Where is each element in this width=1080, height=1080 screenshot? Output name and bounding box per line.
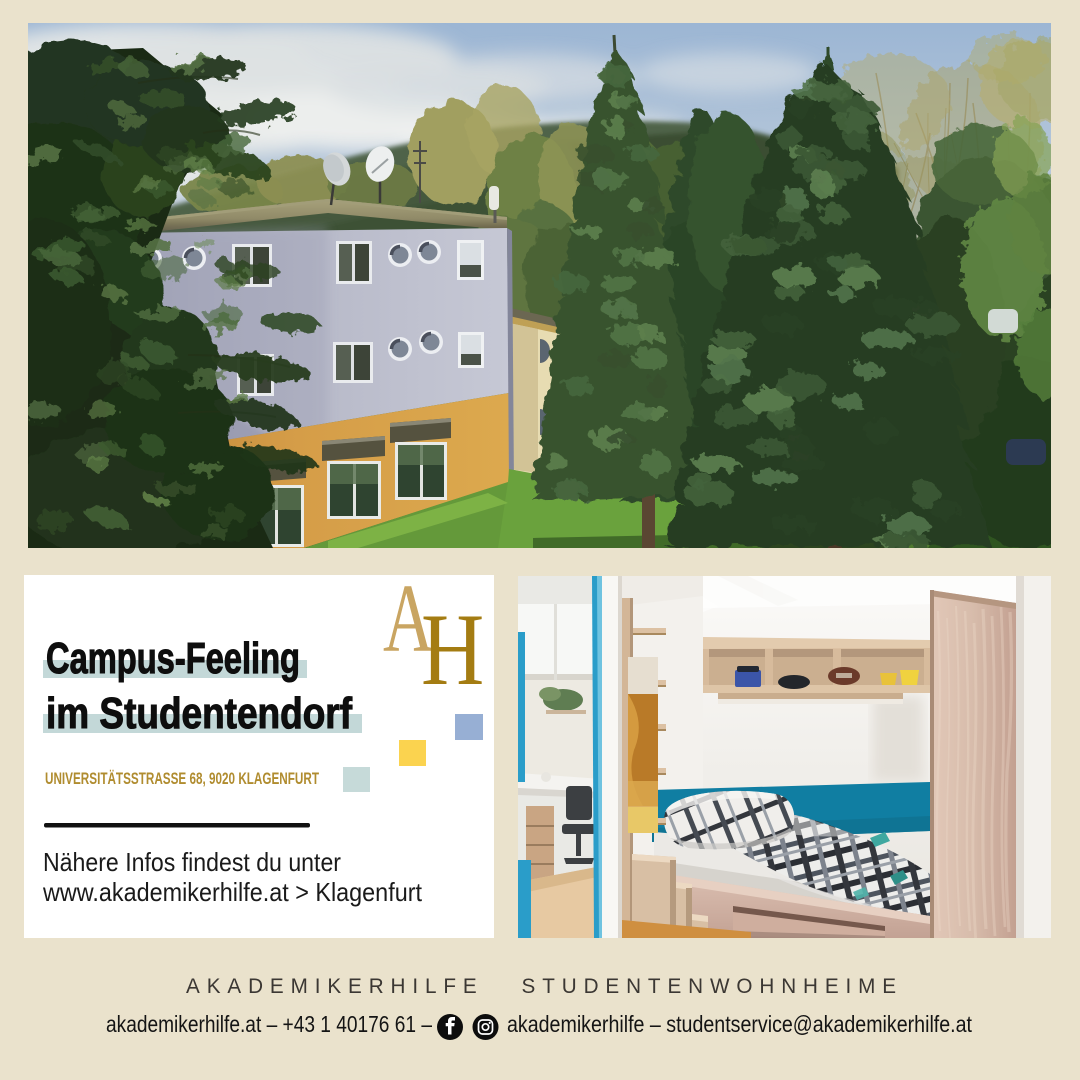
svg-text:AKADEMIKERHILFE STUDENTENWOH: AKADEMIKERHILFE STUDENTENWOHNHEIME bbox=[186, 975, 903, 998]
svg-text:akademikerhilfe.at – +43 1 401: akademikerhilfe.at – +43 1 40176 61 – bbox=[106, 1011, 432, 1037]
svg-text:Campus-Feeling: Campus-Feeling bbox=[46, 634, 300, 683]
svg-text:akademikerhilfe – studentservi: akademikerhilfe – studentservice@akademi… bbox=[507, 1011, 973, 1037]
svg-text:www.akademikerhilfe.at > Klage: www.akademikerhilfe.at > Klagenfurt bbox=[42, 877, 423, 907]
svg-text:UNIVERSITÄTSSTRASSE 68, 9020 K: UNIVERSITÄTSSTRASSE 68, 9020 KLAGENFURT bbox=[45, 770, 319, 788]
svg-text:H: H bbox=[421, 592, 484, 706]
svg-text:im Studentendorf: im Studentendorf bbox=[46, 689, 352, 738]
svg-text:Nähere Infos findest du unter: Nähere Infos findest du unter bbox=[43, 847, 341, 877]
